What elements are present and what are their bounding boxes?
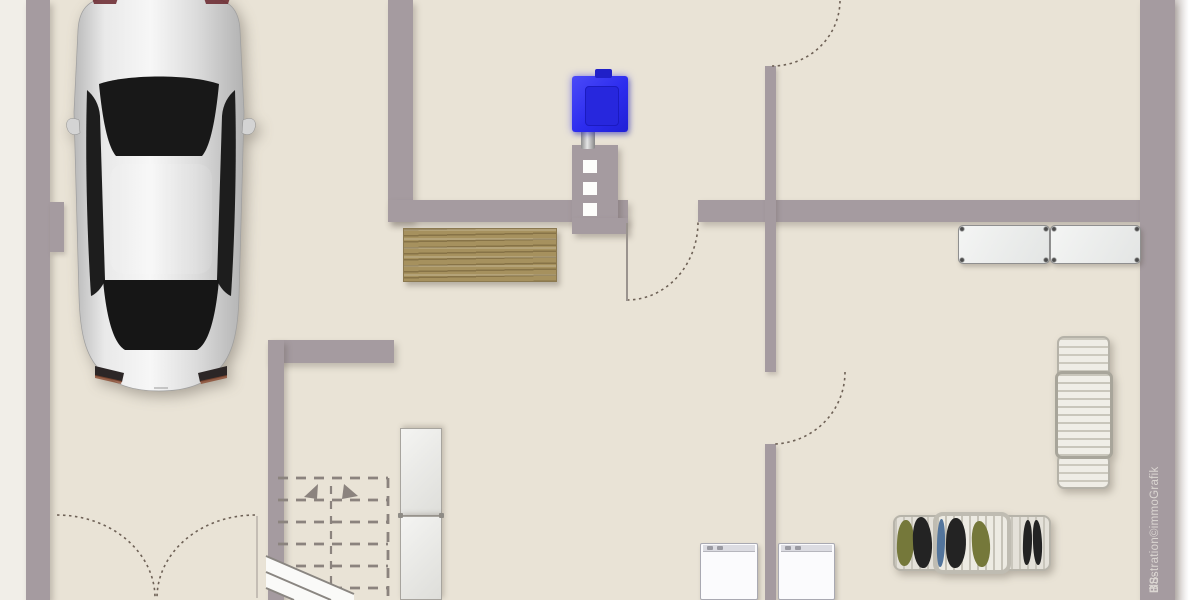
stair-arrowhead-left [304, 484, 318, 499]
floor-plan: BS-Illustration©immoGrafik [0, 0, 1200, 600]
car-mirror-right [242, 118, 255, 134]
car-taillight-right [204, 0, 230, 4]
car-taillight-left [92, 0, 118, 4]
garage-door-arc-right [157, 515, 255, 598]
car-roof-highlight [110, 164, 212, 274]
credit-text: BS-Illustration©immoGrafik [1149, 40, 1165, 600]
car-mirror-left [67, 118, 80, 134]
credit-rest: Illustration©immoGrafik [1149, 466, 1161, 593]
car-top-view [66, 0, 256, 396]
top-right-door-arc [772, 1, 840, 66]
car-windshield [103, 280, 219, 350]
stair-solid-winders [266, 556, 354, 600]
garage-door-arc-left [57, 515, 155, 598]
car-rear-window [99, 77, 219, 157]
laundry-room-door-arc [772, 372, 845, 444]
stair-arrowhead-right [342, 484, 358, 499]
boiler-room-door-arc [627, 222, 698, 300]
